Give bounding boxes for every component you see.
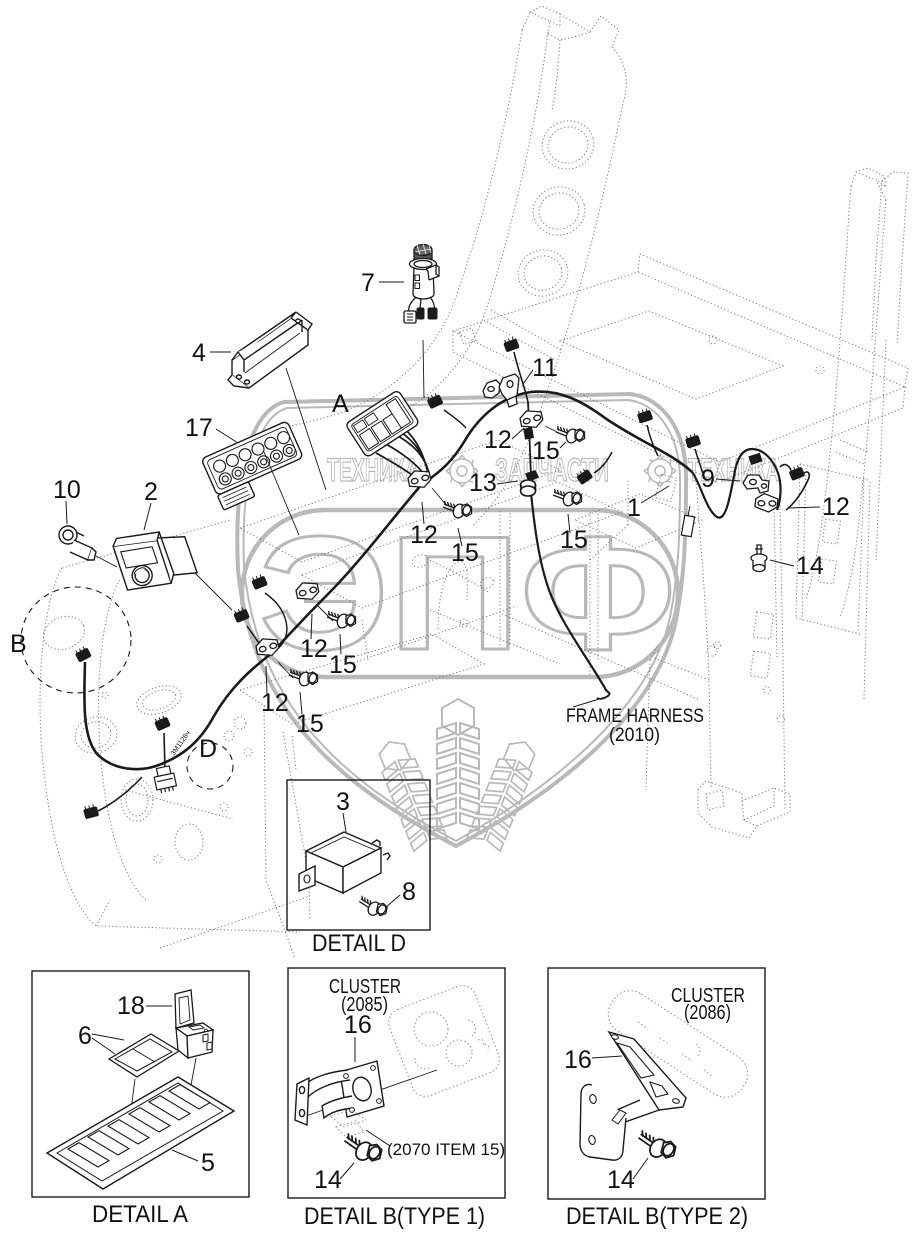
svg-text:13: 13 <box>469 469 497 497</box>
svg-text:D: D <box>199 735 217 763</box>
svg-text:4: 4 <box>192 339 206 367</box>
svg-text:A: A <box>332 390 349 418</box>
svg-text:14: 14 <box>607 1166 635 1194</box>
svg-text:2: 2 <box>144 478 158 506</box>
svg-text:7: 7 <box>361 269 375 297</box>
svg-text:18: 18 <box>117 992 145 1020</box>
svg-text:(2070 ITEM 15): (2070 ITEM 15) <box>387 1140 505 1159</box>
svg-text:12: 12 <box>410 521 438 549</box>
svg-text:5: 5 <box>201 1149 215 1177</box>
svg-text:12: 12 <box>484 426 512 454</box>
svg-text:DETAIL D: DETAIL D <box>312 930 406 957</box>
svg-text:10: 10 <box>53 476 81 504</box>
svg-text:12: 12 <box>261 689 289 717</box>
svg-text:DETAIL B(TYPE 1): DETAIL B(TYPE 1) <box>304 1203 485 1230</box>
svg-text:15: 15 <box>532 437 560 465</box>
svg-text:16: 16 <box>344 1011 372 1039</box>
svg-text:16: 16 <box>564 1046 592 1074</box>
svg-text:6: 6 <box>78 1022 92 1050</box>
svg-text:14: 14 <box>314 1166 342 1194</box>
svg-text:15: 15 <box>451 539 479 567</box>
svg-text:15: 15 <box>560 526 588 554</box>
svg-text:DETAIL B(TYPE 2): DETAIL B(TYPE 2) <box>566 1203 748 1230</box>
svg-text:12: 12 <box>300 635 328 663</box>
svg-text:9: 9 <box>701 465 715 493</box>
svg-text:(2086): (2086) <box>684 1001 731 1024</box>
svg-text:1: 1 <box>627 494 641 522</box>
svg-text:(2010): (2010) <box>609 724 660 746</box>
svg-text:3: 3 <box>336 788 350 816</box>
svg-text:17: 17 <box>185 414 213 442</box>
svg-text:12: 12 <box>822 493 850 521</box>
svg-text:DETAIL A: DETAIL A <box>92 1201 188 1228</box>
svg-text:15: 15 <box>296 710 324 738</box>
svg-text:14: 14 <box>796 552 824 580</box>
svg-text:15: 15 <box>329 651 357 679</box>
svg-text:11: 11 <box>532 354 558 382</box>
svg-text:B: B <box>10 630 27 658</box>
svg-text:8: 8 <box>402 878 416 906</box>
